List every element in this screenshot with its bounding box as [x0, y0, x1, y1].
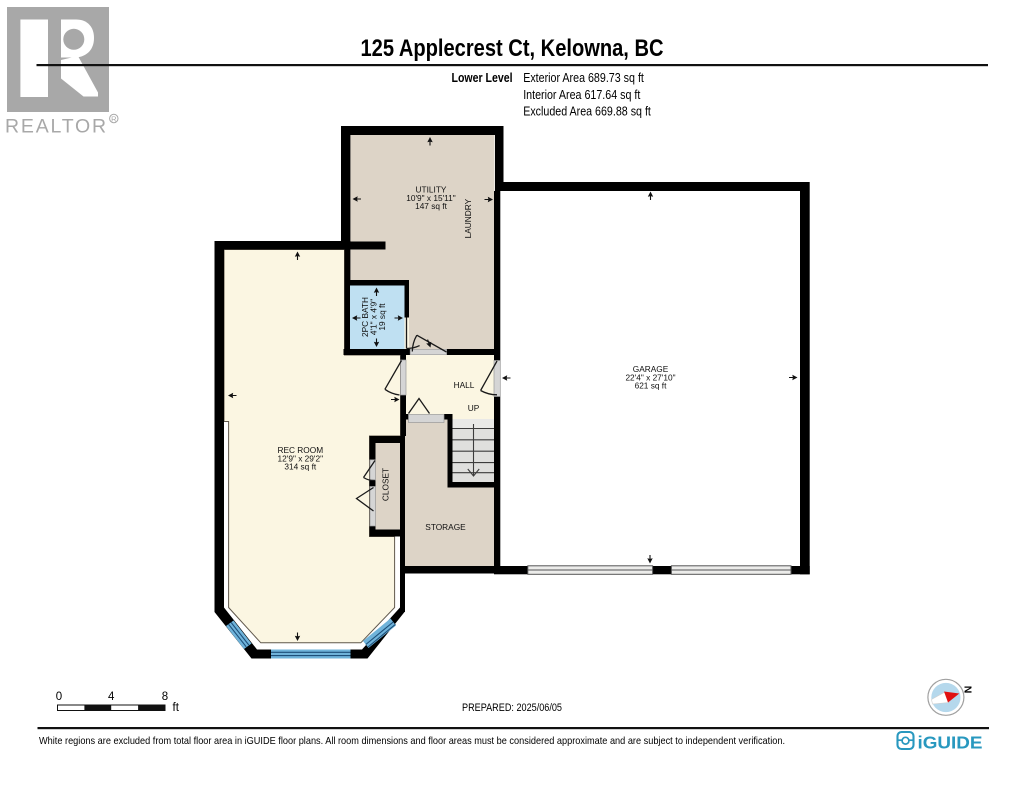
svg-text:N: N — [961, 686, 973, 694]
svg-text:HALL: HALL — [454, 380, 475, 390]
svg-text:ft: ft — [173, 702, 180, 714]
svg-text:PREPARED: 2025/06/05: PREPARED: 2025/06/05 — [462, 702, 562, 714]
svg-text:8: 8 — [162, 691, 168, 703]
svg-text:UP: UP — [468, 403, 480, 413]
svg-text:Excluded Area 669.88 sq ft: Excluded Area 669.88 sq ft — [523, 103, 651, 118]
svg-text:White regions are excluded fro: White regions are excluded from total fl… — [39, 735, 785, 747]
svg-text:REALTOR: REALTOR — [5, 116, 108, 138]
svg-text:0: 0 — [56, 691, 62, 703]
svg-text:Interior Area 617.64 sq ft: Interior Area 617.64 sq ft — [523, 87, 641, 102]
svg-text:Lower Level: Lower Level — [452, 70, 513, 85]
svg-text:19 sq ft: 19 sq ft — [377, 303, 387, 331]
svg-text:621 sq ft: 621 sq ft — [635, 381, 668, 391]
svg-text:iGUIDE: iGUIDE — [918, 733, 983, 753]
svg-text:Exterior Area 689.73 sq ft: Exterior Area 689.73 sq ft — [523, 70, 644, 85]
svg-text:R: R — [111, 114, 117, 123]
svg-text:CLOSET: CLOSET — [381, 468, 391, 501]
svg-text:147 sq ft: 147 sq ft — [415, 201, 448, 211]
svg-text:314 sq ft: 314 sq ft — [284, 462, 317, 472]
svg-text:LAUNDRY: LAUNDRY — [463, 198, 473, 238]
svg-text:125 Applecrest Ct, Kelowna, BC: 125 Applecrest Ct, Kelowna, BC — [361, 35, 664, 62]
svg-text:STORAGE: STORAGE — [425, 522, 466, 532]
svg-text:4: 4 — [108, 691, 115, 703]
